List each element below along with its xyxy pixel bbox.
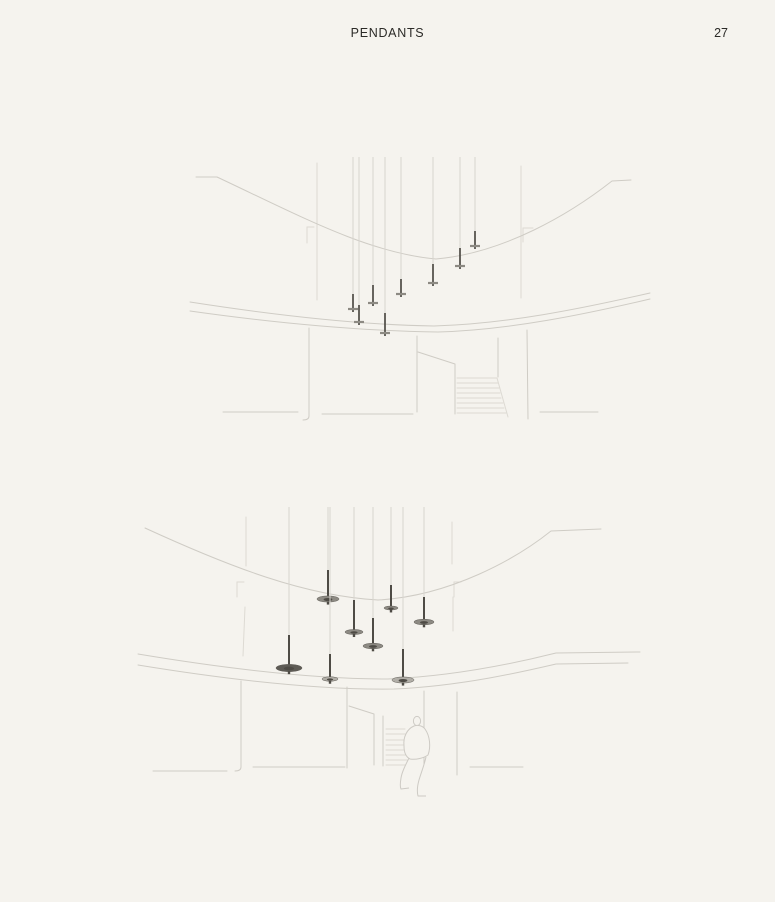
pendant-lamp xyxy=(414,507,434,627)
structure-lines xyxy=(138,528,640,775)
figure-leg xyxy=(400,758,409,789)
pendant-lamp xyxy=(354,157,364,325)
pendant-lamp xyxy=(363,507,383,651)
pendant-lamp xyxy=(276,507,302,674)
balcony-edge-upper xyxy=(138,652,640,679)
pendant-lamp xyxy=(348,157,358,312)
column-bracket xyxy=(237,582,244,597)
pendants xyxy=(348,157,480,336)
door-line xyxy=(349,706,374,765)
pendant-lamp xyxy=(368,157,378,306)
walking-figure xyxy=(400,716,429,796)
figure-torso xyxy=(404,725,430,759)
wall-line xyxy=(303,328,309,420)
door-line xyxy=(418,352,455,414)
balcony-edge-lower xyxy=(190,299,650,332)
pendant-lamp xyxy=(455,157,465,269)
pendant-lamp xyxy=(345,507,363,637)
balcony-edge-lower xyxy=(138,663,628,689)
balcony-edge-upper xyxy=(190,293,650,326)
wall-line xyxy=(527,330,528,419)
stairs xyxy=(457,378,508,417)
column-line xyxy=(243,607,245,656)
pendant-lamp xyxy=(317,507,339,605)
wall-line xyxy=(235,681,241,771)
column-bracket xyxy=(523,228,533,242)
pendant-lamp xyxy=(428,157,438,286)
background-columns xyxy=(237,517,461,765)
catalog-page: PENDANTS 27 xyxy=(0,0,775,902)
structure-lines xyxy=(190,177,650,420)
pendant-lamp xyxy=(396,157,406,297)
background-columns xyxy=(307,163,533,417)
elevation-sketch-far xyxy=(0,140,775,450)
page-title: PENDANTS xyxy=(0,26,775,40)
pendant-lamp xyxy=(470,157,480,249)
page-number: 27 xyxy=(714,26,728,40)
column-bracket xyxy=(307,227,314,243)
elevation-sketch-near xyxy=(0,495,775,815)
figure-head xyxy=(413,716,420,725)
ceiling-line xyxy=(196,177,631,259)
pendant-lamp xyxy=(384,507,398,612)
figure-leg xyxy=(417,757,426,796)
pendant-lamp xyxy=(380,157,390,336)
